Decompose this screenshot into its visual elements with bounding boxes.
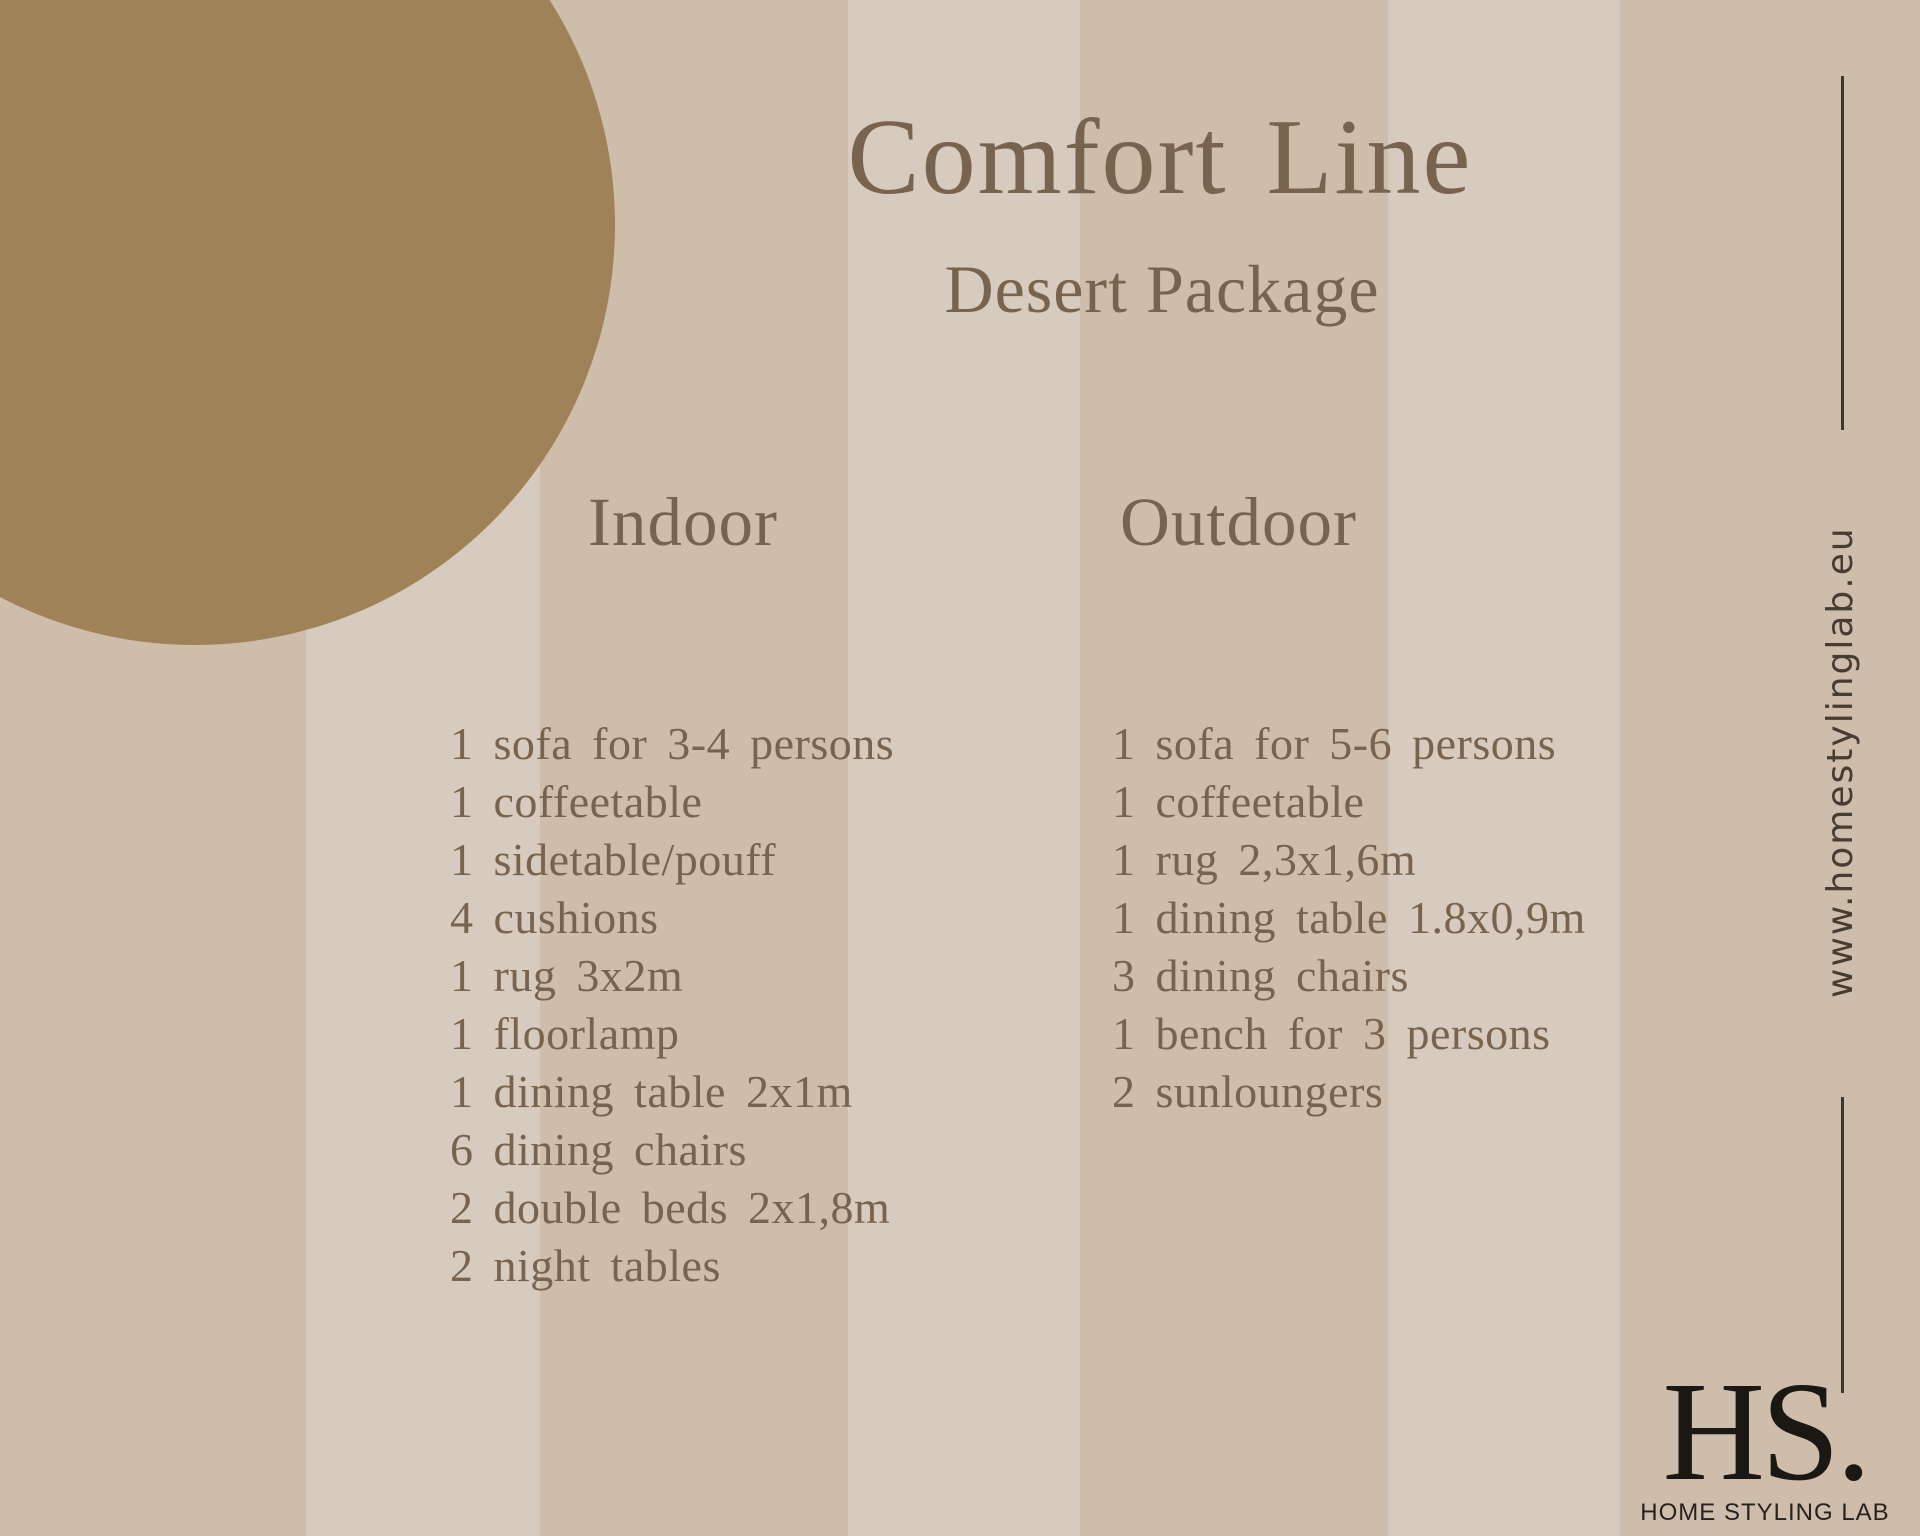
decorative-circle	[0, 0, 615, 645]
page-subtitle: Desert Package	[662, 255, 1662, 323]
list-item: 1 coffeetable	[450, 773, 894, 831]
divider-line-top	[1841, 76, 1844, 430]
website-vertical-text: www.homestylinglab.eu	[1820, 528, 1872, 998]
list-item: 1 sofa for 3-4 persons	[450, 715, 894, 773]
logo-monogram: HS.	[1560, 1360, 1920, 1502]
list-item: 2 double beds 2x1,8m	[450, 1179, 894, 1237]
logo-name: HOME STYLING LAB	[1560, 1499, 1920, 1527]
outdoor-item-list: 1 sofa for 5-6 persons1 coffeetable1 rug…	[1112, 715, 1586, 1121]
list-item: 1 dining table 1.8x0,9m	[1112, 889, 1586, 947]
list-item: 2 sunloungers	[1112, 1063, 1586, 1121]
column-heading-indoor: Indoor	[588, 488, 778, 557]
list-item: 4 cushions	[450, 889, 894, 947]
list-item: 6 dining chairs	[450, 1121, 894, 1179]
list-item: 1 floorlamp	[450, 1005, 894, 1063]
indoor-item-list: 1 sofa for 3-4 persons1 coffeetable1 sid…	[450, 715, 894, 1295]
column-heading-outdoor: Outdoor	[1120, 488, 1357, 557]
list-item: 1 coffeetable	[1112, 773, 1586, 831]
list-item: 1 rug 2,3x1,6m	[1112, 831, 1586, 889]
page-title: Comfort Line	[650, 104, 1670, 212]
list-item: 1 sofa for 5-6 persons	[1112, 715, 1586, 773]
list-item: 2 night tables	[450, 1237, 894, 1295]
list-item: 1 sidetable/pouff	[450, 831, 894, 889]
flyer-canvas: Comfort Line Desert Package Indoor Outdo…	[0, 0, 1920, 1536]
list-item: 1 rug 3x2m	[450, 947, 894, 1005]
list-item: 1 bench for 3 persons	[1112, 1005, 1586, 1063]
list-item: 1 dining table 2x1m	[450, 1063, 894, 1121]
divider-line-bottom	[1841, 1097, 1844, 1393]
list-item: 3 dining chairs	[1112, 947, 1586, 1005]
